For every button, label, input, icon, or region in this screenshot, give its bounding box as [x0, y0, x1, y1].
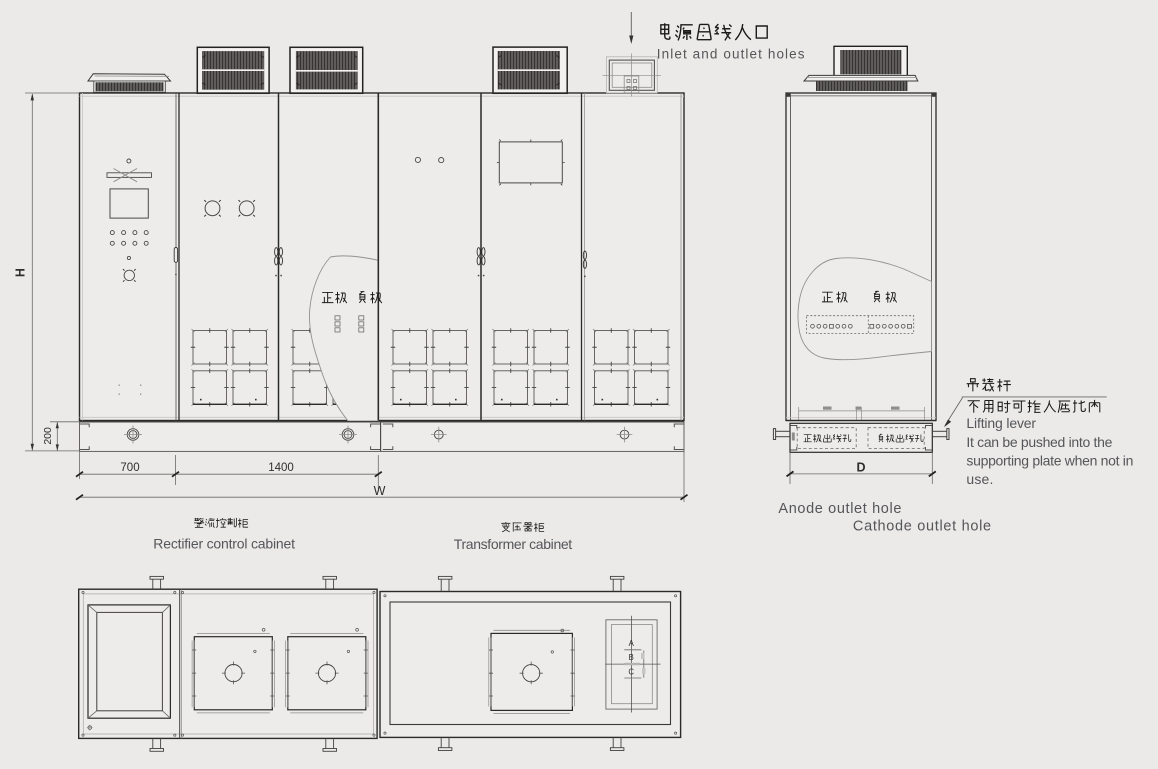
svg-text:It can be pushed into the: It can be pushed into the	[966, 434, 1112, 450]
svg-text:W: W	[374, 484, 386, 498]
svg-text:B: B	[629, 653, 634, 662]
svg-text:use.: use.	[966, 471, 993, 487]
svg-text:Lifting lever: Lifting lever	[966, 415, 1036, 431]
svg-text:700: 700	[120, 462, 139, 474]
svg-text:Inlet and outlet holes: Inlet and outlet holes	[657, 47, 805, 62]
svg-text:Anode outlet hole: Anode outlet hole	[778, 501, 901, 517]
svg-text:Cathode outlet hole: Cathode outlet hole	[853, 518, 991, 534]
svg-text:200: 200	[42, 427, 54, 445]
svg-text:H: H	[14, 268, 28, 277]
svg-text:1400: 1400	[268, 462, 294, 474]
svg-text:A: A	[629, 639, 635, 648]
svg-text:supporting plate when not in: supporting plate when not in	[966, 453, 1133, 469]
svg-text:Transformer cabinet: Transformer cabinet	[454, 536, 573, 552]
svg-text:Rectifier control cabinet: Rectifier control cabinet	[153, 536, 295, 552]
svg-text:D: D	[856, 461, 865, 475]
svg-text:C: C	[628, 668, 634, 677]
